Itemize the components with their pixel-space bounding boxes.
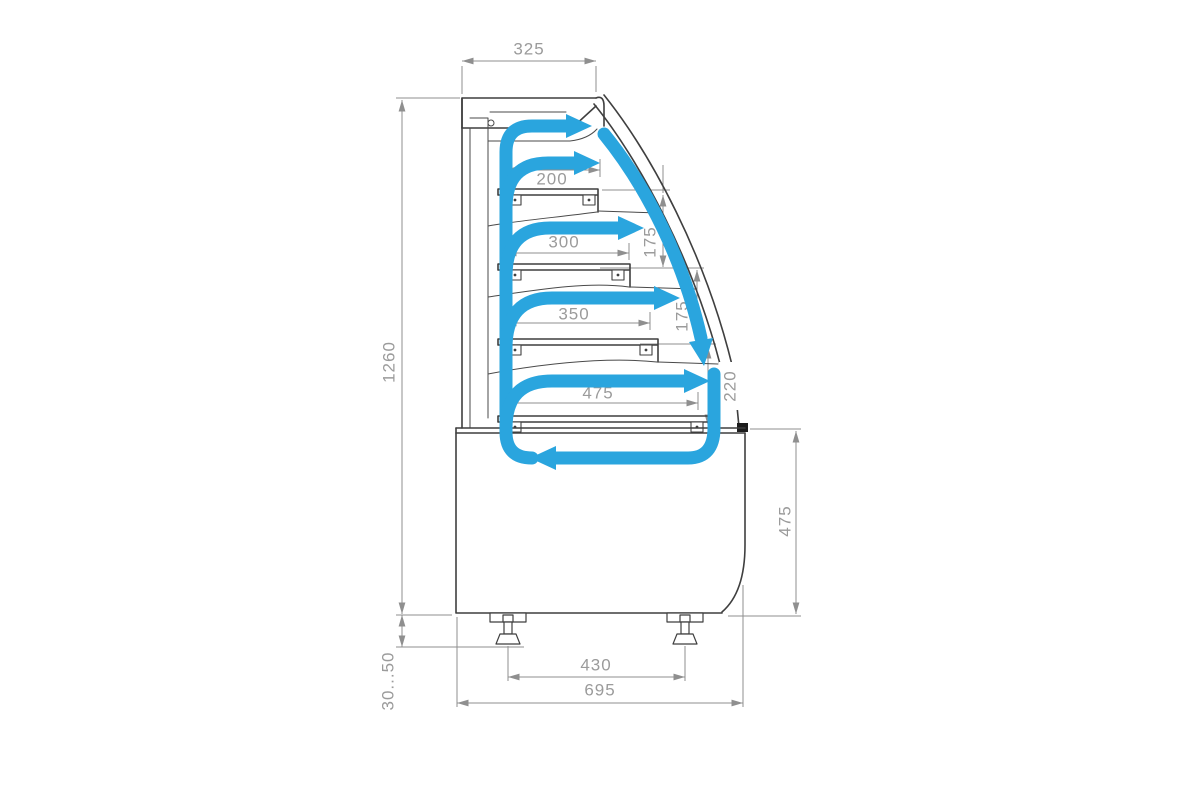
dim-label-shelf3-depth: 350 — [558, 304, 589, 323]
dim-label-overall-height: 1260 — [379, 341, 398, 383]
dim-label-overall-depth: 695 — [584, 680, 615, 699]
dim-label-shelf2-depth: 300 — [548, 232, 579, 251]
canopy — [462, 97, 604, 141]
dim-label-base-height: 475 — [775, 505, 794, 536]
dim-label-foot-range: 30...50 — [378, 652, 397, 711]
arrowhead-shelf-1-icon — [574, 151, 600, 175]
arrowhead-deck-icon — [684, 369, 710, 393]
shelf-1 — [488, 189, 660, 226]
dim-label-deck-front: 220 — [720, 370, 739, 401]
dim-label-feet-spacing: 430 — [580, 655, 611, 674]
arrowhead-top-outlet-icon — [566, 114, 592, 138]
drawing-canvas: 325 1260 200 300 350 475 175 175 220 475… — [0, 0, 1200, 800]
dim-label-canopy-depth: 325 — [513, 39, 544, 58]
dim-label-gap-upper: 175 — [640, 226, 659, 257]
adjustable-foot-right — [667, 613, 703, 644]
dim-label-shelf1-depth: 200 — [536, 169, 567, 188]
arrowhead-glass-downdraft-icon — [689, 338, 713, 366]
display-case-section-drawing: 325 1260 200 300 350 475 175 175 220 475… — [0, 0, 1200, 800]
vent-hole — [488, 120, 494, 126]
arrowhead-bottom-return-icon — [530, 446, 556, 470]
adjustable-foot-left — [490, 613, 526, 644]
back-wall — [462, 98, 494, 428]
